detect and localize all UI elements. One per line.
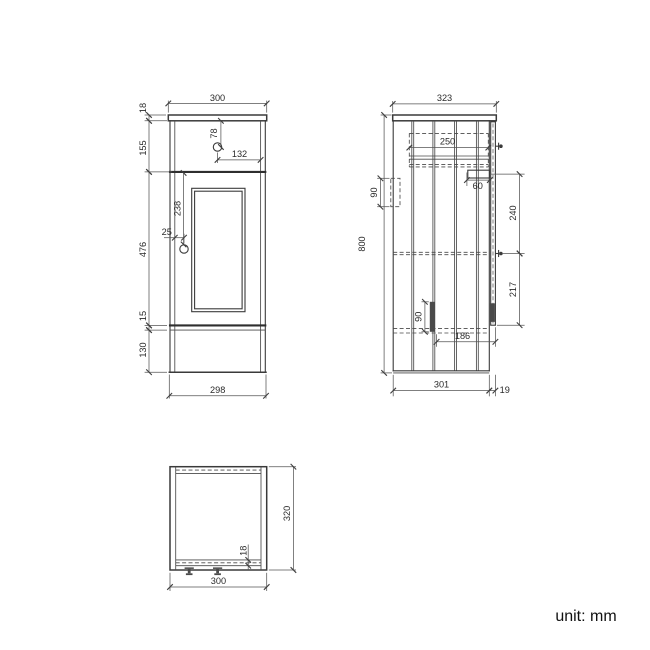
dim-plan-width-group: 300 — [170, 573, 267, 591]
dim-plan-depth: 320 — [282, 506, 292, 521]
side-door-knob — [496, 251, 503, 257]
dim-front-door-knob-top: 238 — [172, 201, 182, 216]
drawer-knob — [213, 143, 221, 151]
dim-side-hinge-to-knob: 240 — [508, 205, 518, 220]
unit-label: unit: mm — [555, 608, 616, 625]
wall-bracket — [391, 178, 400, 206]
dim-plan-width: 300 — [211, 576, 226, 586]
plan-view: 18 300 320 — [170, 467, 296, 591]
dim-side-door-thickness: 19 — [500, 385, 510, 395]
dim-side-runner-to-front-group: 186 — [437, 327, 496, 347]
cabinet-technical-drawing: 300 18 155 476 15 130 78 132 — [0, 0, 650, 650]
dim-front-plinth-height: 130 — [138, 342, 148, 357]
dim-side-knob-to-bottom: 217 — [508, 282, 518, 297]
dim-side-top-depth-group: 323 — [393, 93, 497, 112]
dim-side-carcass-depth: 301 — [434, 380, 449, 390]
technical-drawing-canvas: 300 18 155 476 15 130 78 132 — [0, 0, 650, 650]
dim-front-bottom-rail: 15 — [138, 311, 148, 321]
dim-side-runner-group: 90 — [413, 302, 428, 332]
dim-front-top-width: 300 — [210, 93, 225, 103]
dim-front-drawer-knob-group: 78 132 — [209, 121, 261, 163]
dim-side-drawer-depth: 250 — [440, 137, 455, 147]
dim-front-drawer-height: 155 — [138, 140, 148, 155]
dim-front-top-width-group: 300 — [168, 93, 266, 113]
dim-front-bottom-width: 298 — [210, 385, 225, 395]
dim-side-height-group: 800 — [357, 115, 392, 373]
countertop-side — [393, 115, 497, 121]
adjustable-foot-right — [213, 567, 222, 575]
dim-front-door-knob-edge: 25 — [162, 227, 172, 237]
plan-outline — [170, 467, 267, 570]
door-knob — [180, 245, 188, 253]
side-drawer-knob — [496, 143, 503, 149]
dim-front-door-knob-group: 238 25 — [162, 173, 184, 245]
dim-side-height: 800 — [357, 236, 367, 251]
dim-side-runner-to-front: 186 — [455, 331, 470, 341]
dim-side-runner-height: 90 — [413, 312, 423, 322]
dim-front-drawer-knob-side: 132 — [232, 149, 247, 159]
countertop-front — [168, 115, 266, 121]
dim-front-door-height: 476 — [138, 242, 148, 257]
lower-hinge — [490, 303, 495, 322]
side-view: 250 60 90 90 1 — [357, 93, 525, 396]
dim-front-countertop-thickness: 18 — [138, 103, 148, 113]
front-view: 300 18 155 476 15 130 78 132 — [138, 93, 267, 399]
dim-side-bracket-height: 90 — [369, 187, 379, 197]
adjustable-foot-left — [185, 567, 194, 575]
dim-front-bottom-width-group: 298 — [169, 375, 266, 399]
dim-side-top-depth: 323 — [437, 93, 452, 103]
dim-side-bottom-group: 301 19 — [393, 375, 510, 397]
cabinet-door-profile — [491, 122, 496, 325]
dim-front-drawer-knob-top: 78 — [209, 128, 219, 138]
dim-plan-rail-thickness: 18 — [238, 546, 248, 556]
drawer-runner — [430, 302, 435, 332]
door-panel — [192, 188, 245, 311]
dim-side-hinge-inset: 60 — [473, 181, 483, 191]
dim-side-bracket-group: 90 — [369, 178, 389, 206]
dim-plan-depth-group: 320 — [269, 467, 296, 570]
